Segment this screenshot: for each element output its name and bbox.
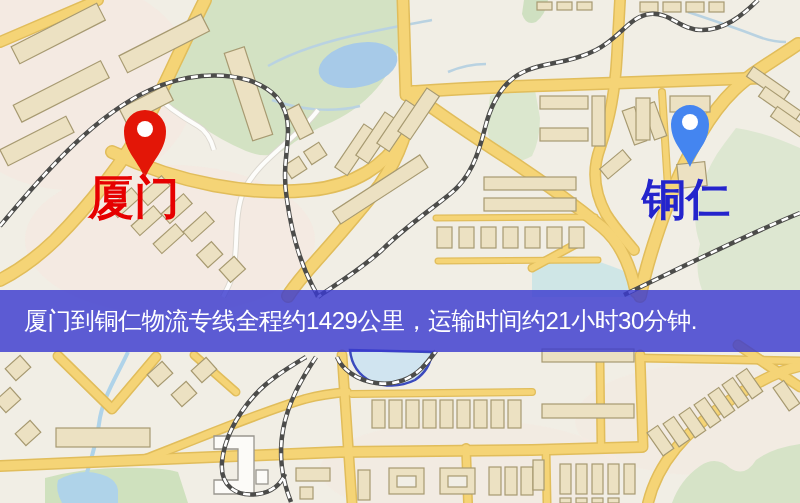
- origin-city-label: 厦门: [88, 174, 180, 220]
- destination-city-label: 铜仁: [642, 177, 730, 221]
- map-image: [0, 0, 800, 503]
- destination-pin-hole: [682, 114, 698, 130]
- origin-pin-hole: [137, 121, 153, 137]
- route-info-text: 厦门到铜仁物流专线全程约1429公里，运输时间约21小时30分钟.: [0, 305, 697, 337]
- map-screenshot: 厦门 铜仁 厦门到铜仁物流专线全程约1429公里，运输时间约21小时30分钟.: [0, 0, 800, 503]
- route-info-banner: 厦门到铜仁物流专线全程约1429公里，运输时间约21小时30分钟.: [0, 290, 800, 352]
